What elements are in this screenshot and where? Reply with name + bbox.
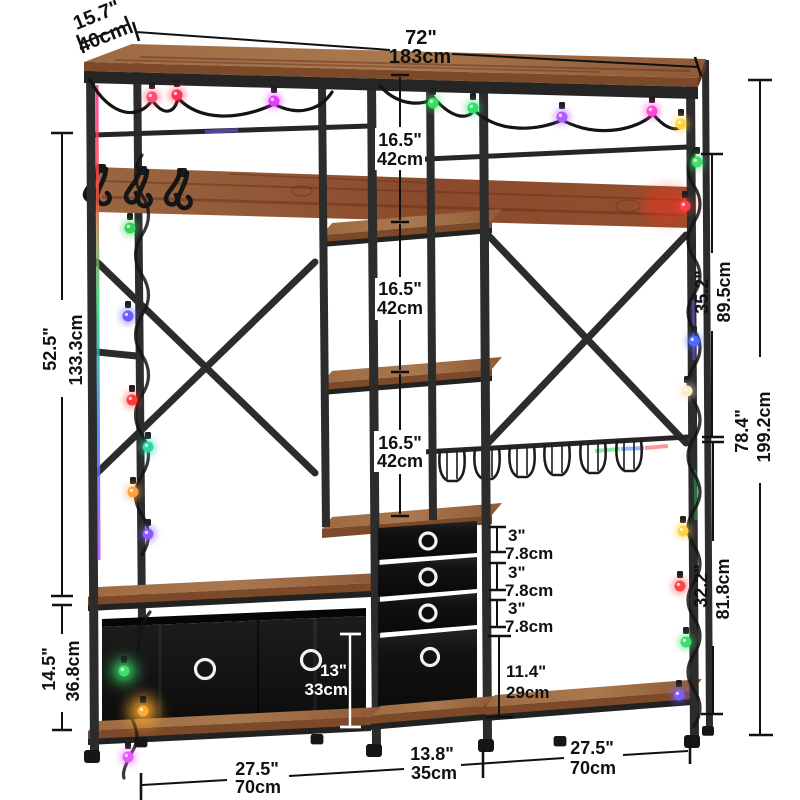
fabric-drawers: [378, 521, 477, 724]
dim-right-upper-in: 35.2": [692, 270, 712, 314]
dim-left-lower-in: 14.5": [39, 647, 59, 691]
dim-overall-in: 78.4": [732, 409, 752, 453]
diagram-canvas: 15.7" 40cm 72" 183cm 52.5" 133.3cm 14.5"…: [0, 0, 800, 800]
dim-gap3-in: 16.5": [378, 433, 422, 453]
dim-drawer-large-cm: 29cm: [506, 683, 549, 702]
dim-right-upper-cm: 89.5cm: [714, 261, 734, 322]
dim-bin-cm: 33cm: [305, 680, 348, 699]
dim-drawer2-cm: 7.8cm: [505, 581, 553, 600]
dim-base-left-in: 27.5": [235, 759, 279, 779]
dim-bin-in: 13": [320, 661, 347, 680]
dim-left-lower-cm: 36.8cm: [63, 640, 83, 701]
dim-left-upper-in: 52.5": [40, 327, 60, 371]
dim-shelf-gaps: 16.5" 42cm 16.5" 42cm 16.5" 42cm: [374, 75, 426, 516]
dim-base-right-cm: 70cm: [570, 758, 616, 778]
dim-right-lower-cm: 81.8cm: [713, 558, 733, 619]
rod-light-glint: [205, 130, 238, 132]
dim-drawer1-cm: 7.8cm: [505, 544, 553, 563]
led-strip: [97, 85, 99, 560]
dim-left-upper-cm: 133.3cm: [66, 314, 86, 385]
dim-gap2-in: 16.5": [378, 279, 422, 299]
dim-base-center-in: 13.8": [410, 744, 454, 764]
dim-drawer3-in: 3": [508, 599, 526, 618]
dim-overall-cm: 199.2cm: [754, 391, 774, 462]
dim-drawer-large-in: 11.4": [506, 662, 546, 681]
dim-gap2-cm: 42cm: [377, 298, 423, 318]
dim-gap1-cm: 42cm: [377, 149, 423, 169]
dim-drawer3-cm: 7.8cm: [505, 617, 553, 636]
dim-base-left-cm: 70cm: [235, 777, 281, 797]
dim-width-cm: 183cm: [389, 46, 451, 68]
dim-drawer2-in: 3": [508, 563, 526, 582]
dim-drawer1-in: 3": [508, 526, 526, 545]
dim-base-right-in: 27.5": [570, 738, 614, 758]
dim-base-center-cm: 35cm: [411, 763, 457, 783]
dim-gap1-in: 16.5": [378, 130, 422, 150]
dim-gap3-cm: 42cm: [377, 451, 423, 471]
dim-right-lower-in: 32.2": [691, 564, 711, 608]
product-dimension-diagram: 15.7" 40cm 72" 183cm 52.5" 133.3cm 14.5"…: [0, 0, 800, 800]
